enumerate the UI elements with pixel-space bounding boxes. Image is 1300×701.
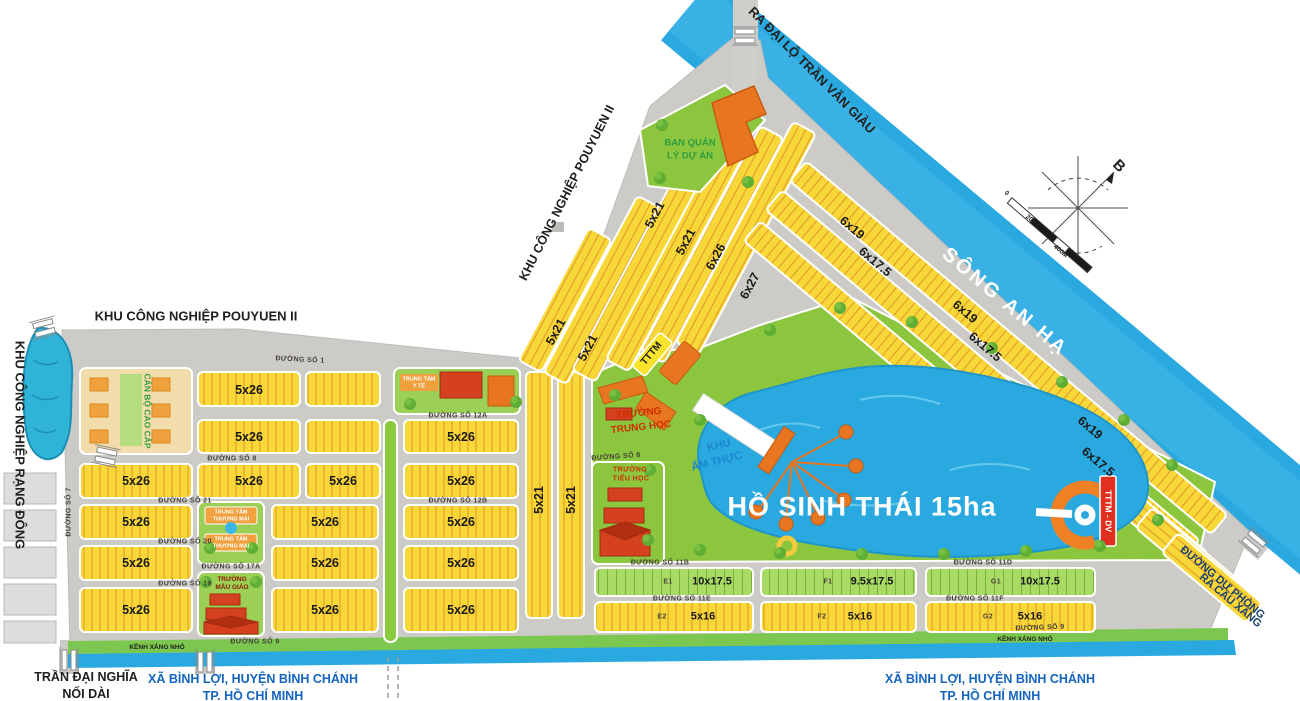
canal-label-east: KÊNH XÁNG NHỎ xyxy=(997,637,1052,644)
lot-label: 5x16 xyxy=(848,612,872,623)
lot-label: 5x26 xyxy=(447,557,475,570)
lot-label: 5x26 xyxy=(447,604,475,617)
management-board-label-2: LÝ DỰ ÁN xyxy=(667,151,713,161)
tran-dai-nghia-label-2: NỐI DÀI xyxy=(62,688,109,701)
master-plan-map: RA ĐẠI LỘ TRẦN VĂN GIÀU KHU CÔNG NGHIỆP … xyxy=(0,0,1300,701)
zone-code: E1 xyxy=(663,579,672,586)
street-label: ĐƯỜNG SỐ 19 xyxy=(158,581,212,588)
commercial-center-label-2a: TRUNG TÂM xyxy=(215,537,248,543)
primary-school-label-1: TRƯỜNG xyxy=(613,467,647,474)
street-label: ĐƯỜNG SỐ 12A xyxy=(429,413,488,420)
primary-school-buildings xyxy=(600,488,650,556)
lot-label: 5x26 xyxy=(311,516,339,529)
zone-code: E2 xyxy=(657,614,666,621)
zone-code: F1 xyxy=(824,579,833,586)
green-median-strip xyxy=(384,420,397,642)
medical-center-label-2: Y TẾ xyxy=(413,384,425,390)
lot-label: 5x26 xyxy=(122,604,150,617)
lot-label: 5x26 xyxy=(235,384,263,397)
street-label: ĐƯỜNG SỐ 9 xyxy=(230,639,279,646)
lot-label: 5x26 xyxy=(122,516,150,529)
zone-code: G1 xyxy=(991,579,1001,586)
street-label: ĐƯỜNG SỐ 8 xyxy=(207,456,256,463)
lot-label: 10x17.5 xyxy=(692,577,732,588)
management-board-label-1: BAN QUẢN xyxy=(664,138,715,148)
lot-label: 5x26 xyxy=(329,475,357,488)
canal-label-west: KÊNH XÁNG NHỎ xyxy=(129,645,184,652)
staff-housing-buildings xyxy=(90,374,170,446)
lot-label: 5x16 xyxy=(1018,612,1042,623)
primary-school-label-2: TIỂU HỌC xyxy=(613,476,650,483)
street-label: ĐƯỜNG SỐ 11B xyxy=(631,560,690,567)
street-label: ĐƯỜNG SỐ 21 xyxy=(158,498,212,505)
street-label: ĐƯỜNG SỐ 11E xyxy=(653,596,711,603)
lot-label: 5x26 xyxy=(122,557,150,570)
lot-label: 5x26 xyxy=(235,475,263,488)
tttm-dv-label: TTTM - DV xyxy=(1104,490,1113,532)
lot-label: 5x21 xyxy=(565,486,578,514)
industrial-zone-label-rangdong: KHU CÔNG NGHIỆP RẠNG ĐÔNG xyxy=(14,341,27,550)
commune-label-east-1: XÃ BÌNH LỢI, HUYỆN BÌNH CHÁNH xyxy=(885,673,1095,686)
street-label: ĐƯỜNG SỐ 12B xyxy=(429,498,488,505)
lot-label: 5x26 xyxy=(235,431,263,444)
lot-label: 5x26 xyxy=(447,431,475,444)
lot-label: 5x26 xyxy=(311,557,339,570)
lot-label: 5x26 xyxy=(447,516,475,529)
zone-code: G2 xyxy=(983,614,993,621)
lot-label: 5x26 xyxy=(122,475,150,488)
kindergarten-label-1: TRƯỜNG xyxy=(217,577,246,584)
commercial-center-label-2b: THƯƠNG MẠI xyxy=(213,544,249,550)
commune-label-west-1: XÃ BÌNH LỢI, HUYỆN BÌNH CHÁNH xyxy=(148,673,358,686)
commercial-center-label-1b: THƯƠNG MẠI xyxy=(213,517,249,523)
industrial-zone-label-west: KHU CÔNG NGHIỆP POUYUEN II xyxy=(95,310,298,323)
street-label: ĐƯỜNG SỐ 11F xyxy=(946,596,1004,603)
commune-label-west-2: TP. HỒ CHÍ MINH xyxy=(203,690,303,701)
zone-code: F2 xyxy=(818,614,827,621)
lot-label: 10x17.5 xyxy=(1020,577,1060,588)
street-label: ĐƯỜNG SỐ 7 xyxy=(66,487,73,536)
lot-label: 9.5x17.5 xyxy=(851,577,894,588)
lot-label: 5x16 xyxy=(691,612,715,623)
west-pond xyxy=(23,328,72,459)
street-label: ĐƯỜNG SỐ 20 xyxy=(158,539,212,546)
street-label: ĐƯỜNG SỐ 17A xyxy=(202,564,261,571)
street-label: ĐƯỜNG SỐ 11D xyxy=(954,560,1013,567)
commune-label-east-2: TP. HỒ CHÍ MINH xyxy=(940,690,1040,701)
lot-label: 5x26 xyxy=(447,475,475,488)
lot-label: 5x21 xyxy=(533,486,546,514)
kindergarten-label-2: MẪU GIÁO xyxy=(215,585,248,592)
lot-label: 5x26 xyxy=(311,604,339,617)
medical-center-label-1: TRUNG TÂM xyxy=(403,377,436,383)
lake-label: HỒ SINH THÁI 15ha xyxy=(727,494,996,521)
staff-housing-label: CÁN BỘ CAO CẤP xyxy=(143,373,152,448)
commercial-center-label-1a: TRUNG TÂM xyxy=(215,510,248,516)
tran-dai-nghia-label-1: TRẦN ĐẠI NGHĨA xyxy=(34,671,137,684)
